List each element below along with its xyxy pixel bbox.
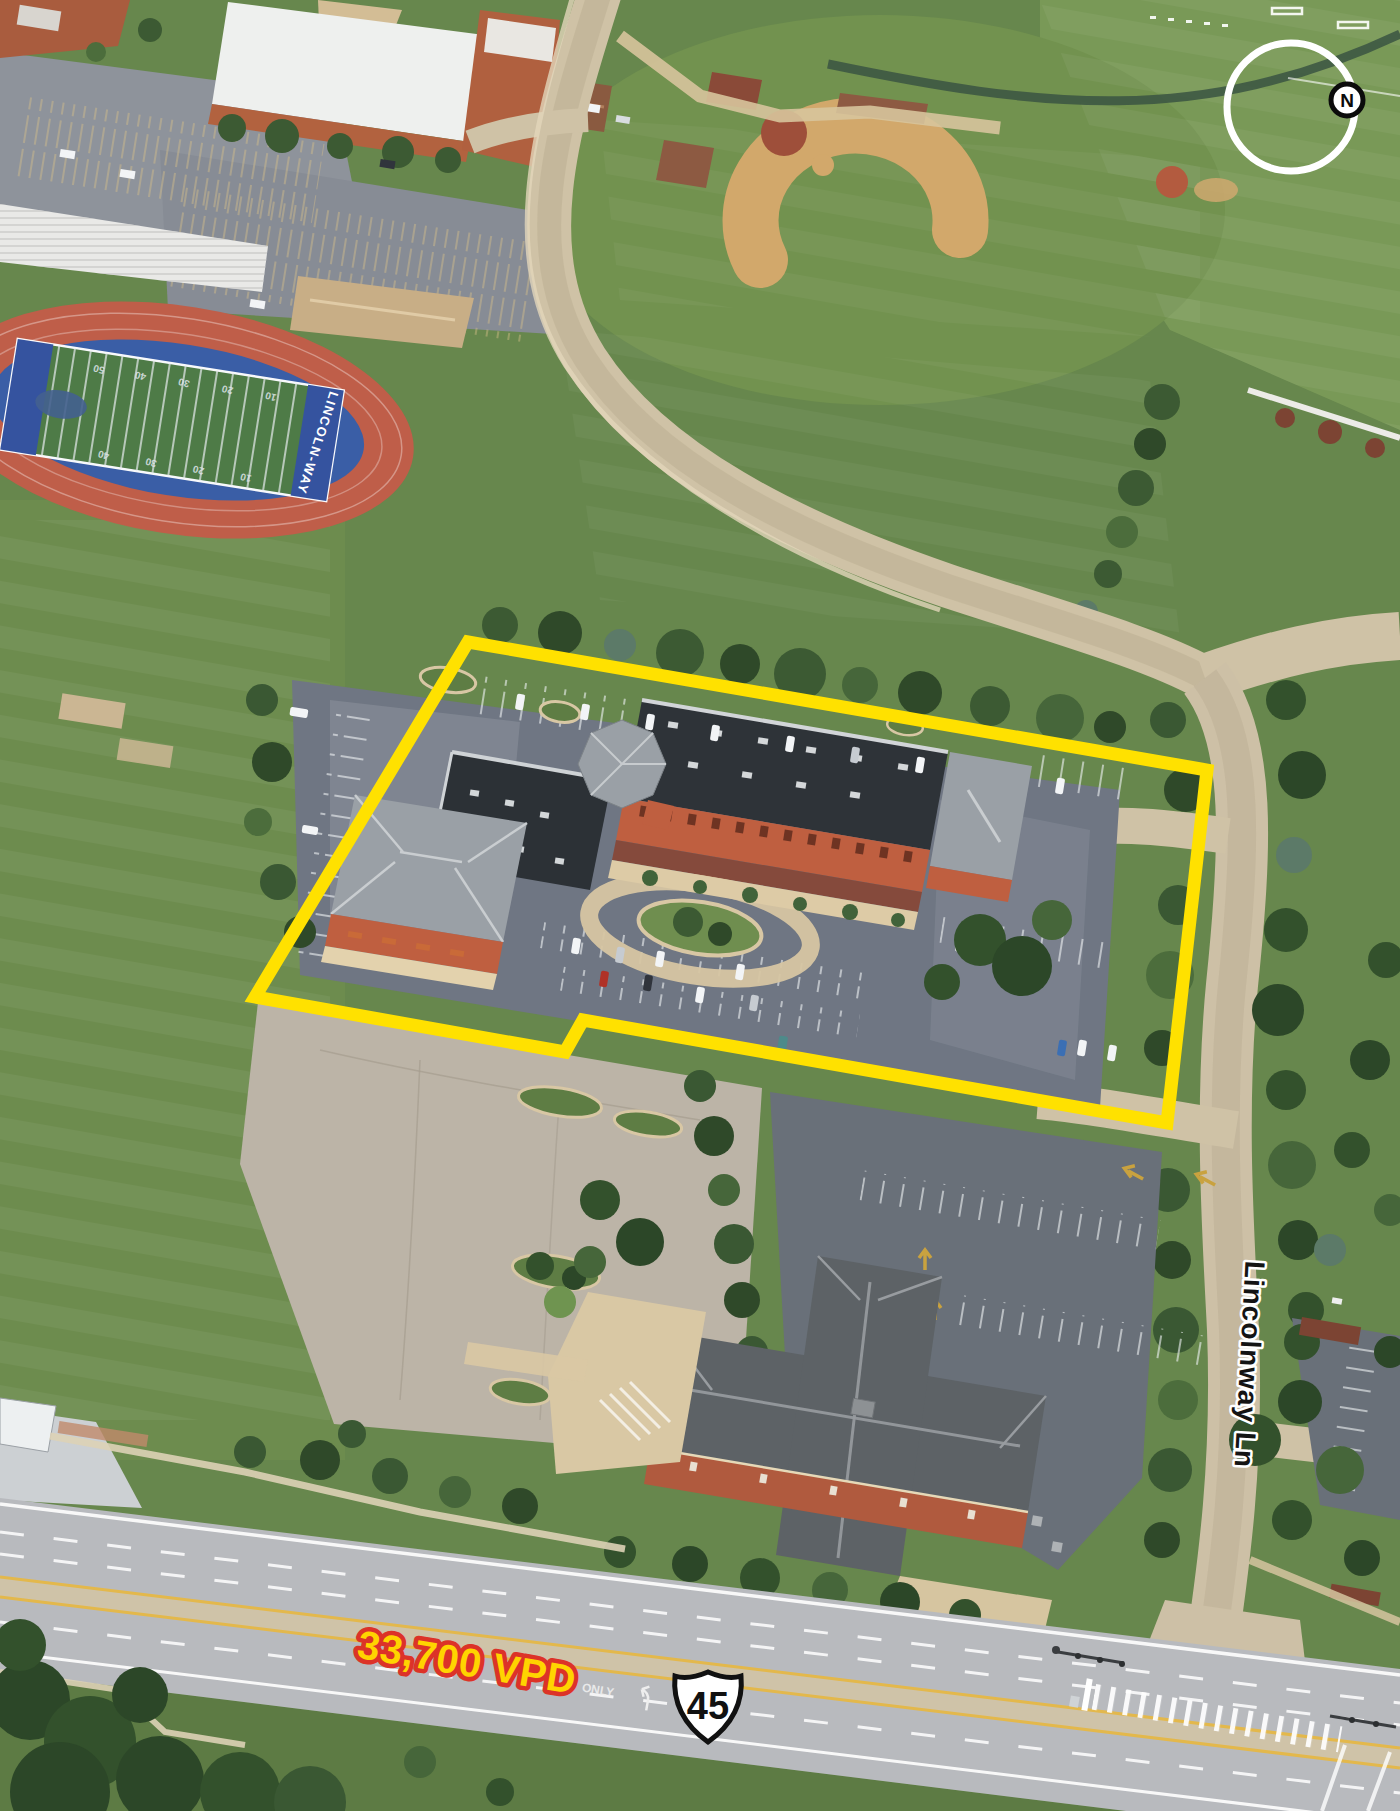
compass-north-letter: N (1340, 90, 1354, 111)
aerial-site-map: 50 40 30 20 10 40 30 20 10 LINCOLN-WAY (0, 0, 1400, 1811)
route-shield-number: 45 (687, 1685, 729, 1727)
